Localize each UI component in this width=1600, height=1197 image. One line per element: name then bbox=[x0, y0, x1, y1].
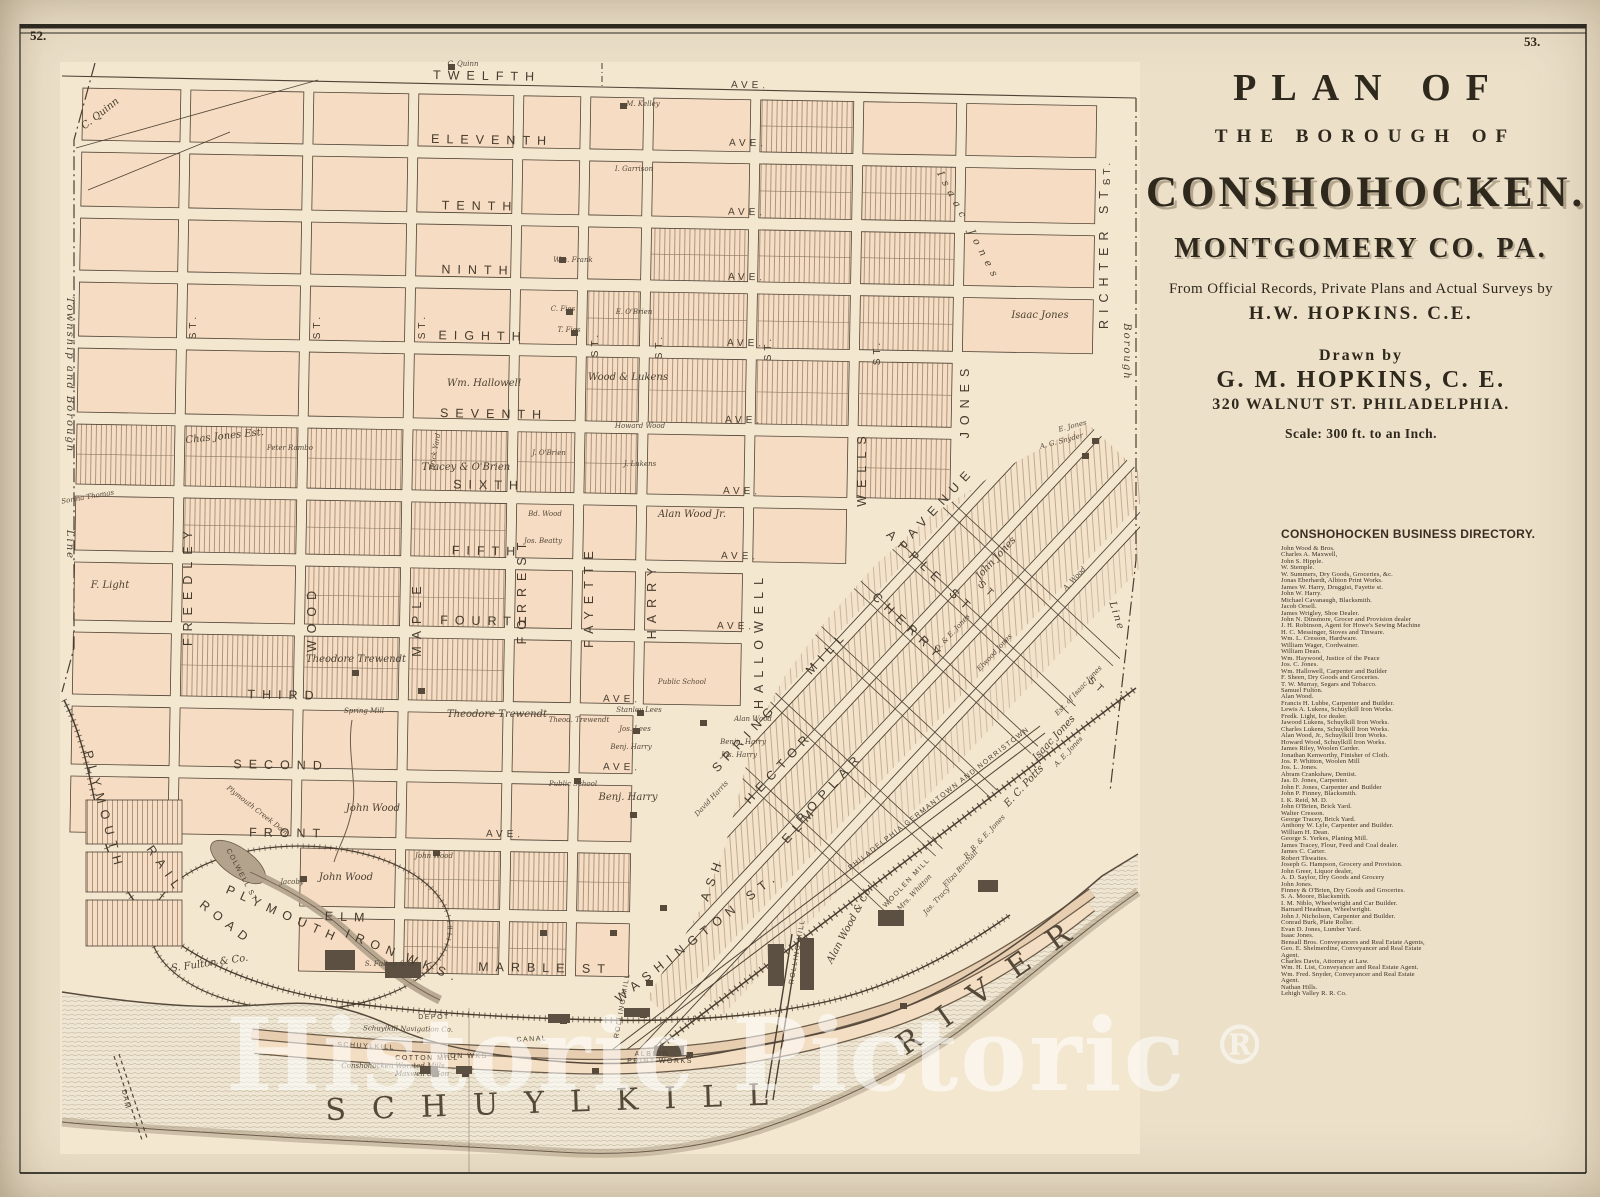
map-label: Wood & Lukens bbox=[588, 372, 668, 383]
building-footprint bbox=[900, 1003, 907, 1009]
map-label: John Wood bbox=[413, 852, 453, 860]
directory-entry: Lehigh Valley R. R. Co. bbox=[1281, 991, 1581, 997]
riverside-block bbox=[86, 900, 182, 946]
map-label: C. Quinn bbox=[447, 60, 479, 68]
mill-building bbox=[548, 1014, 570, 1023]
map-label: Theod. Trewendt bbox=[549, 716, 610, 724]
map-label: AVE. bbox=[731, 80, 769, 92]
map-label: ST. bbox=[763, 335, 774, 361]
business-directory: CONSHOHOCKEN BUSINESS DIRECTORY. John Wo… bbox=[1281, 527, 1581, 998]
city-block bbox=[77, 348, 176, 414]
map-label: C. Fies bbox=[551, 305, 576, 313]
city-block bbox=[754, 436, 848, 498]
map-label: Maxwell & Son bbox=[394, 1070, 450, 1078]
map-label: DEPOT bbox=[418, 1014, 450, 1021]
map-label: Tracey & O'Brien bbox=[422, 462, 510, 473]
city-block bbox=[72, 632, 171, 696]
page-number-left: 52. bbox=[30, 28, 46, 44]
building-footprint bbox=[352, 670, 359, 676]
map-label: Theodore Trewendt bbox=[447, 709, 548, 720]
map-label: SEVENTH bbox=[440, 406, 548, 422]
map-label: John Wood bbox=[317, 872, 373, 883]
map-label: EIGHTH bbox=[438, 328, 527, 344]
map-label: M. Kelley bbox=[625, 100, 660, 108]
map-label: AVE. bbox=[727, 338, 765, 350]
building-footprint bbox=[540, 930, 547, 936]
city-block bbox=[313, 92, 409, 146]
city-block bbox=[513, 640, 571, 703]
city-block bbox=[189, 154, 303, 210]
title-drawn-by: Drawn by bbox=[1146, 347, 1576, 365]
map-label: Wm. Frank bbox=[553, 256, 592, 264]
map-label: SIXTH bbox=[453, 477, 525, 492]
title-borough-of: THE BOROUGH OF bbox=[1146, 126, 1576, 148]
map-label: Jos. Beatty bbox=[522, 537, 563, 545]
map-label: AVE. bbox=[603, 762, 641, 774]
map-label: WELLS bbox=[855, 429, 869, 506]
city-block bbox=[753, 508, 847, 564]
map-label: Public School bbox=[657, 678, 706, 686]
mill-building bbox=[978, 880, 998, 892]
map-label: Schuylkill Navigation Co. bbox=[363, 1024, 453, 1034]
page-number-right: 53. bbox=[1524, 34, 1540, 50]
business-directory-list: John Wood & Bros.Charles A. Maxwell,John… bbox=[1281, 546, 1581, 998]
map-label: MAPLE bbox=[410, 579, 424, 656]
map-label: HARRY bbox=[645, 561, 659, 640]
title-address: 320 WALNUT ST. PHILADELPHIA. bbox=[1146, 396, 1576, 414]
title-drafter: G. M. HOPKINS, C. E. bbox=[1146, 367, 1576, 394]
map-label: HALLOWELL bbox=[752, 571, 766, 709]
map-label: E. O'Brien bbox=[615, 308, 653, 316]
map-label: Howard Wood bbox=[614, 422, 666, 430]
city-block bbox=[75, 496, 174, 552]
city-block bbox=[310, 286, 406, 342]
city-block bbox=[643, 642, 741, 706]
atlas-sheet: TWELFTHAVE.ELEVENTHAVE.TENTHAVE.NINTHAVE… bbox=[0, 0, 1600, 1197]
building-footprint bbox=[610, 930, 617, 936]
mill-building bbox=[325, 950, 355, 970]
map-label: ST. bbox=[188, 313, 199, 339]
map-label: Township and Borough bbox=[64, 297, 75, 454]
map-label: J. Lukens bbox=[622, 460, 657, 468]
map-label: Jos. Harry bbox=[719, 751, 758, 759]
map-label: Benj. Harry bbox=[597, 792, 657, 803]
map-label: AVE. bbox=[717, 621, 755, 633]
map-label: S. Fulton & Co. bbox=[365, 960, 420, 968]
map-label: AVE. bbox=[486, 829, 524, 841]
map-label: I. Garrison bbox=[614, 165, 654, 173]
map-label: John Wood bbox=[344, 803, 400, 814]
city-block bbox=[187, 284, 301, 340]
map-label: WOOD bbox=[305, 584, 319, 652]
map-label: ALBION bbox=[635, 1051, 670, 1058]
city-block bbox=[308, 352, 404, 418]
map-label: Theodore Trewendt bbox=[306, 654, 407, 665]
city-block bbox=[519, 290, 577, 345]
building-footprint bbox=[700, 720, 707, 726]
city-block bbox=[312, 156, 408, 212]
city-block bbox=[80, 218, 179, 272]
map-label: Conshohocken Worsted Mills bbox=[341, 1062, 445, 1070]
map-label: F. Light bbox=[90, 580, 130, 591]
map-label: Public School bbox=[548, 780, 597, 788]
building-footprint bbox=[592, 1068, 599, 1074]
map-label: ELM bbox=[325, 909, 372, 925]
city-block bbox=[588, 227, 642, 280]
map-label: Peter Rambo bbox=[266, 444, 313, 452]
map-label: Bd. Wood bbox=[527, 510, 562, 518]
city-block bbox=[185, 350, 299, 416]
map-label: AVE. bbox=[725, 415, 763, 427]
title-block: PLAN OF THE BOROUGH OF CONSHOHOCKEN. MON… bbox=[1146, 66, 1576, 442]
mill-building bbox=[768, 944, 784, 986]
city-block bbox=[962, 297, 1093, 353]
map-label: AVE. bbox=[728, 207, 766, 219]
map-label: FAYETTE bbox=[582, 544, 596, 648]
map-label: AVE. bbox=[721, 551, 759, 563]
title-records-line: From Official Records, Private Plans and… bbox=[1146, 281, 1576, 298]
city-block bbox=[190, 90, 304, 144]
building-footprint bbox=[418, 688, 425, 694]
map-label: FREEDLEY bbox=[181, 524, 195, 646]
city-block bbox=[863, 102, 957, 156]
map-label: ST. bbox=[590, 331, 601, 357]
map-label: NINTH bbox=[441, 262, 514, 277]
map-label: AVE. bbox=[729, 138, 767, 150]
map-label: AVE. bbox=[603, 694, 641, 706]
city-block bbox=[74, 562, 173, 622]
map-label: THIRD bbox=[247, 687, 320, 702]
map-label: RICHTER ST. bbox=[1097, 175, 1111, 329]
title-county: MONTGOMERY CO. PA. bbox=[1146, 233, 1576, 265]
map-label: Benjn. Harry bbox=[719, 738, 767, 746]
title-scale: Scale: 300 ft. to an Inch. bbox=[1146, 426, 1576, 442]
map-label: FORREST bbox=[515, 536, 529, 645]
map-label: Benj. Harry bbox=[609, 743, 652, 751]
map-label: ST. bbox=[417, 313, 428, 339]
map-label: AVE. bbox=[728, 272, 766, 284]
title-surveyor: H.W. HOPKINS. C.E. bbox=[1146, 303, 1576, 325]
map-label: Jos. Lees bbox=[617, 725, 651, 733]
map-label: Spring Mill bbox=[344, 707, 384, 715]
map-label: Alan Wood Jr. bbox=[657, 509, 726, 520]
city-block bbox=[182, 564, 296, 624]
map-label: JONES bbox=[958, 362, 972, 439]
map-label: ST. bbox=[654, 333, 665, 359]
building-footprint bbox=[1082, 453, 1089, 459]
map-label: Borough bbox=[1121, 322, 1132, 380]
map-label: TWELFTH bbox=[433, 68, 541, 84]
mill-building bbox=[456, 1066, 472, 1074]
map-label: ST. bbox=[1102, 159, 1113, 185]
title-borough-name: CONSHOHOCKEN. bbox=[1146, 168, 1576, 217]
map-label: Line bbox=[64, 529, 75, 560]
map-label: PRINT WORKS bbox=[627, 1058, 693, 1065]
city-block bbox=[407, 712, 503, 772]
map-label: ST. bbox=[872, 339, 883, 365]
map-label: FRONT bbox=[249, 825, 327, 840]
city-block bbox=[966, 104, 1097, 158]
city-block bbox=[521, 226, 579, 279]
mill-building bbox=[624, 1008, 650, 1017]
building-footprint bbox=[630, 812, 637, 818]
map-label: T. Fies bbox=[558, 326, 581, 334]
map-label: FIFTH bbox=[452, 543, 523, 558]
city-block bbox=[79, 282, 178, 338]
city-block bbox=[311, 222, 407, 276]
map-label: Stanley Lees bbox=[616, 706, 662, 714]
map-label: ST. bbox=[312, 313, 323, 339]
city-block bbox=[81, 152, 180, 208]
business-directory-heading: CONSHOHOCKEN BUSINESS DIRECTORY. bbox=[1281, 527, 1581, 541]
city-block bbox=[522, 160, 580, 215]
map-label: Jacoby bbox=[278, 878, 305, 886]
map-label: Alan Wood bbox=[733, 715, 772, 723]
map-label: Isaac Jones bbox=[1010, 310, 1068, 321]
map-label: ELEVENTH bbox=[431, 132, 553, 148]
city-block bbox=[188, 220, 302, 274]
map-label: Wm. Hallowell bbox=[447, 378, 521, 389]
map-label: TENTH bbox=[442, 198, 519, 213]
map-label: AVE. bbox=[723, 486, 761, 498]
title-plan-of: PLAN OF bbox=[1146, 66, 1576, 110]
map-label: J. O'Brien bbox=[530, 449, 566, 457]
building-footprint bbox=[660, 905, 667, 911]
map-label: MARBLE ST bbox=[478, 960, 612, 976]
map-label: IRON WKS bbox=[440, 1053, 487, 1060]
building-footprint bbox=[1092, 438, 1099, 444]
city-block bbox=[965, 168, 1096, 224]
map-label: SECOND bbox=[233, 757, 329, 773]
